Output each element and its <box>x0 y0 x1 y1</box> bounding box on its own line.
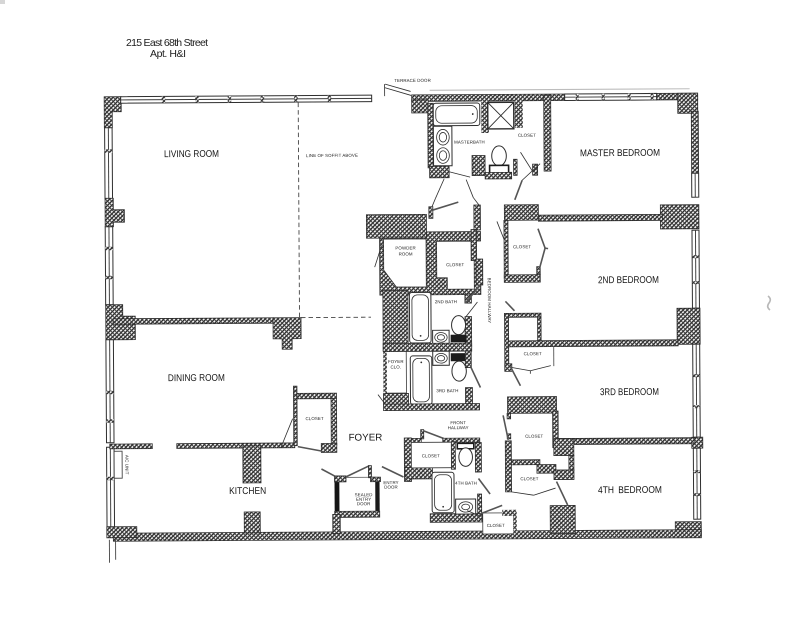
svg-text:FOYER: FOYER <box>349 432 383 443</box>
svg-text:BEDROOM HALLWAY: BEDROOM HALLWAY <box>487 278 492 324</box>
svg-text:HALLWAY: HALLWAY <box>448 425 469 430</box>
svg-text:FOYER: FOYER <box>388 359 404 364</box>
svg-text:4TH BATH: 4TH BATH <box>455 481 477 486</box>
svg-text:LINE OF SOFFIT ABOVE: LINE OF SOFFIT ABOVE <box>306 153 358 158</box>
svg-text:3RD BEDROOM: 3RD BEDROOM <box>600 387 659 398</box>
svg-text:CLOSET: CLOSET <box>446 262 464 267</box>
svg-text:2ND BEDROOM: 2ND BEDROOM <box>598 275 659 286</box>
svg-text:DOOR: DOOR <box>357 501 371 506</box>
svg-text:4TH BEDROOM: 4TH BEDROOM <box>598 485 662 496</box>
svg-text:CLOSET: CLOSET <box>525 434 543 439</box>
svg-text:2ND BATH: 2ND BATH <box>435 299 457 304</box>
svg-text:DOOR: DOOR <box>384 485 398 490</box>
svg-text:3RD BATH: 3RD BATH <box>436 388 458 393</box>
svg-text:DINING ROOM: DINING ROOM <box>168 373 225 384</box>
svg-text:MASTER BEDROOM: MASTER BEDROOM <box>580 148 660 159</box>
svg-text:CLOSET: CLOSET <box>422 453 440 458</box>
svg-text:CLOSET: CLOSET <box>306 416 324 421</box>
svg-text:A/C UNIT: A/C UNIT <box>124 455 129 475</box>
svg-text:POWDER: POWDER <box>395 245 415 250</box>
svg-text:CLO.: CLO. <box>390 365 401 370</box>
svg-text:CLOSET: CLOSET <box>520 476 538 481</box>
svg-text:ROOM: ROOM <box>399 251 413 256</box>
svg-text:CLOSET: CLOSET <box>487 523 505 528</box>
svg-text:LIVING ROOM: LIVING ROOM <box>164 149 219 160</box>
svg-text:CLOSET: CLOSET <box>513 244 531 249</box>
svg-text:Apt. H&I: Apt. H&I <box>150 48 186 60</box>
svg-text:CLOSET: CLOSET <box>524 351 542 356</box>
svg-text:TERRACE DOOR: TERRACE DOOR <box>394 78 431 83</box>
svg-text:MASTERBATH: MASTERBATH <box>454 139 485 144</box>
svg-text:CLOSET: CLOSET <box>518 133 536 138</box>
svg-text:KITCHEN: KITCHEN <box>229 486 266 497</box>
